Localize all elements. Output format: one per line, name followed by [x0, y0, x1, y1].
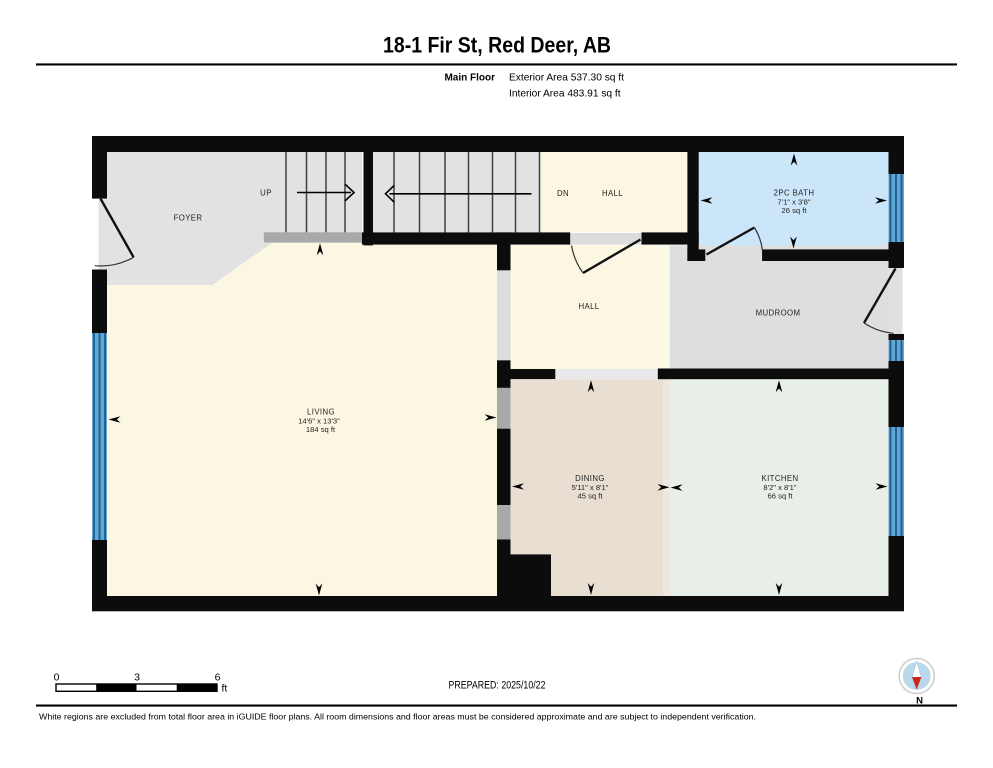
- svg-text:Exterior Area 537.30 sq ft: Exterior Area 537.30 sq ft: [509, 73, 624, 84]
- svg-text:7'1" x 3'8": 7'1" x 3'8": [777, 198, 811, 207]
- svg-text:UP: UP: [260, 189, 272, 198]
- svg-text:Interior Area 483.91 sq ft: Interior Area 483.91 sq ft: [509, 88, 621, 99]
- svg-text:MUDROOM: MUDROOM: [756, 309, 801, 318]
- svg-text:2PC BATH: 2PC BATH: [774, 189, 815, 198]
- svg-text:DN: DN: [557, 189, 569, 198]
- svg-text:LIVING: LIVING: [307, 408, 335, 417]
- svg-text:3: 3: [134, 672, 140, 684]
- svg-text:66 sq ft: 66 sq ft: [768, 491, 794, 500]
- svg-text:0: 0: [54, 672, 60, 684]
- svg-text:HALL: HALL: [602, 189, 623, 198]
- svg-text:FOYER: FOYER: [174, 214, 203, 223]
- svg-text:45 sq ft: 45 sq ft: [578, 491, 604, 500]
- svg-text:18-1 Fir St, Red Deer, AB: 18-1 Fir St, Red Deer, AB: [383, 33, 611, 58]
- svg-text:HALL: HALL: [578, 302, 599, 311]
- svg-text:Main Floor: Main Floor: [444, 73, 495, 84]
- svg-text:PREPARED: 2025/10/22: PREPARED: 2025/10/22: [449, 680, 546, 692]
- svg-text:26 sq ft: 26 sq ft: [782, 206, 808, 215]
- svg-text:6: 6: [215, 672, 221, 684]
- svg-text:184 sq ft: 184 sq ft: [306, 425, 336, 434]
- svg-text:White regions are excluded fro: White regions are excluded from total fl…: [39, 712, 756, 722]
- svg-text:ft: ft: [222, 683, 228, 695]
